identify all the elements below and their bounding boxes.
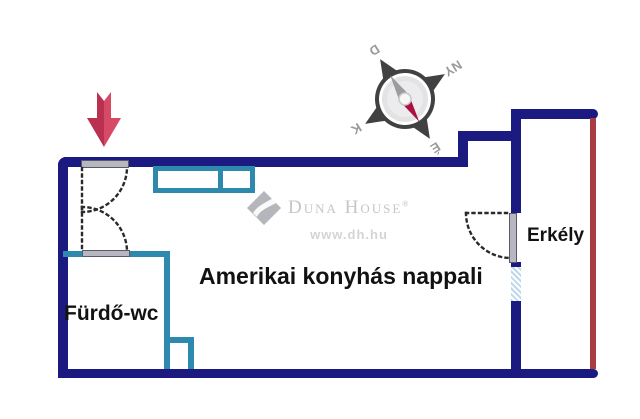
compass-label-south: D — [367, 41, 383, 59]
entry-door-swing-arc — [82, 167, 127, 212]
room-label-bathroom: Fürdő-wc — [64, 302, 159, 326]
compass-label-west: NY — [441, 57, 465, 79]
compass-label-north: É — [428, 139, 444, 156]
room-label-balcony: Erkély — [527, 225, 584, 247]
entrance-arrow-icon — [87, 92, 121, 147]
room-label-living: Amerikai konyhás nappali — [199, 263, 483, 290]
bathroom-door-swing-arc — [82, 207, 127, 252]
balcony-door-swing-arc — [466, 213, 511, 258]
floorplan-canvas: Duna House® www.dh.hu — [0, 0, 640, 419]
compass-label-east: K — [348, 120, 364, 138]
door-swing-overlay — [0, 0, 640, 419]
compass-icon: É K D NY — [340, 34, 470, 164]
